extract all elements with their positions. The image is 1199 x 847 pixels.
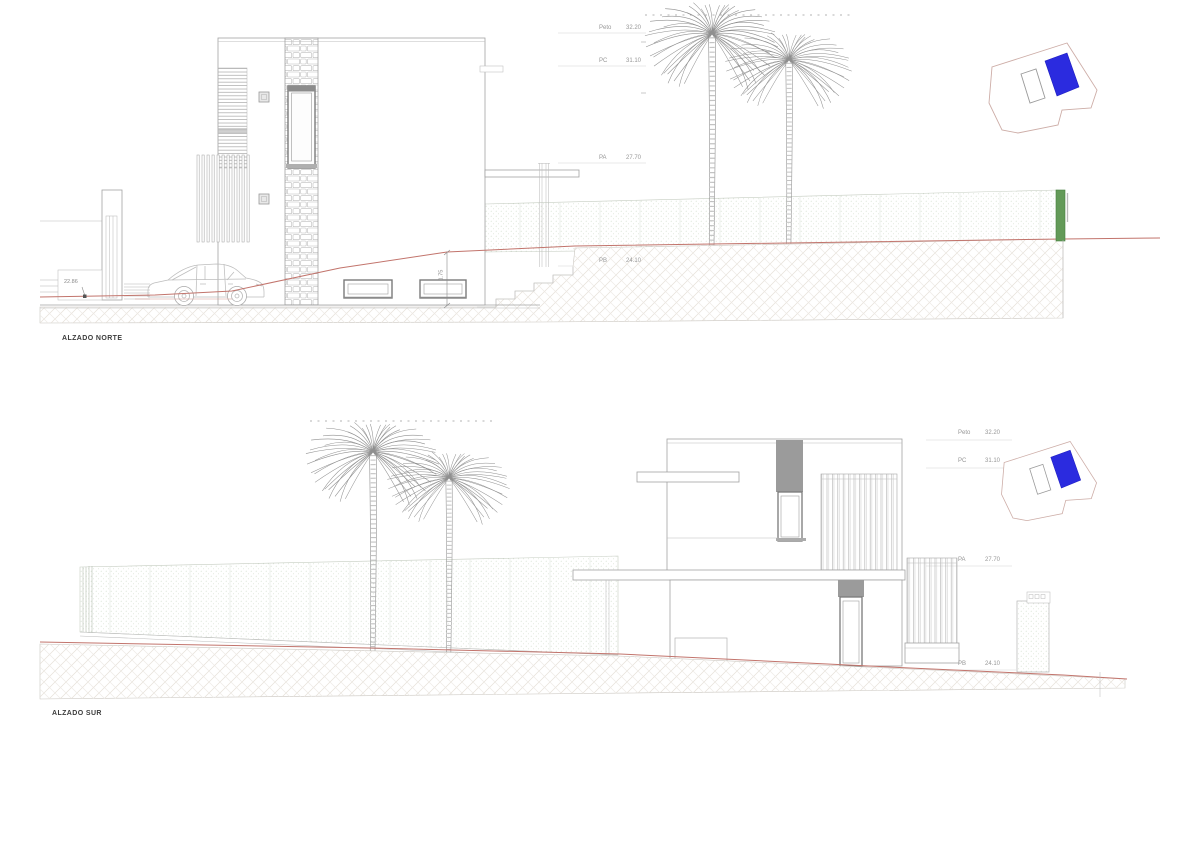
level-label: PB [958,661,966,667]
boundary-wall-south [80,556,618,659]
level-value: 31.10 [985,458,1000,464]
level-value: 31.10 [626,58,641,64]
level-label: PA [599,155,607,161]
level-annotation-north-pc: PC 31.10 [599,58,641,64]
canopy-beam [637,472,739,482]
house-north [197,38,503,305]
elevation-title-north: ALZADO NORTE [62,335,122,342]
tall-window [286,86,317,168]
level-label: PC [958,458,966,464]
north-elevation-drawing [40,0,1160,323]
level-label: PC [599,58,607,64]
level-label: Peto [958,430,970,436]
level-annotation-south-pa: PA 27.70 [958,557,1000,563]
entrance-gate [40,190,150,300]
entrance-door [838,580,864,666]
elevation-title-south: ALZADO SUR [52,710,102,717]
stone-pier [285,38,318,305]
horizontal-louver-panel [218,68,247,168]
level-annotation-south-pb: PB 24.10 [958,661,1000,667]
level-value: 24.10 [985,661,1000,667]
house-south [573,439,905,666]
level-value: 24.10 [626,258,641,264]
roof-ledge [480,66,503,72]
level-annotation-south-pc: PC 31.10 [958,458,1000,464]
louver-fence-south [905,558,959,663]
level-annotation-north-pa: PA 27.70 [599,155,641,161]
basement-exposure-dimension: 1.75 [438,270,444,281]
level-value: 32.20 [985,430,1000,436]
canopy-slab [573,570,905,580]
louver-screen-upper [821,474,897,570]
recess-panel [776,440,803,492]
upper-window [776,492,806,541]
level-annotation-south-peto: Peto 32.20 [958,430,1000,436]
level-label: PA [958,557,966,563]
level-value: 27.70 [626,155,641,161]
level-label: PB [599,258,607,264]
level-value: 27.70 [985,557,1000,563]
street-level-dimension: 22.86 [64,279,78,285]
site-plan-key-north [989,43,1097,133]
architectural-drawing-sheet: ALZADO NORTE ALZADO SUR Peto 32.20 PC 31… [0,0,1199,847]
site-plan-key-south [1002,441,1097,520]
level-annotation-north-peto: Peto 32.20 [599,25,641,31]
level-value: 32.20 [626,25,641,31]
elevation-linework [0,0,1199,847]
level-label: Peto [599,25,611,31]
level-annotation-north-pb: PB 24.10 [599,258,641,264]
